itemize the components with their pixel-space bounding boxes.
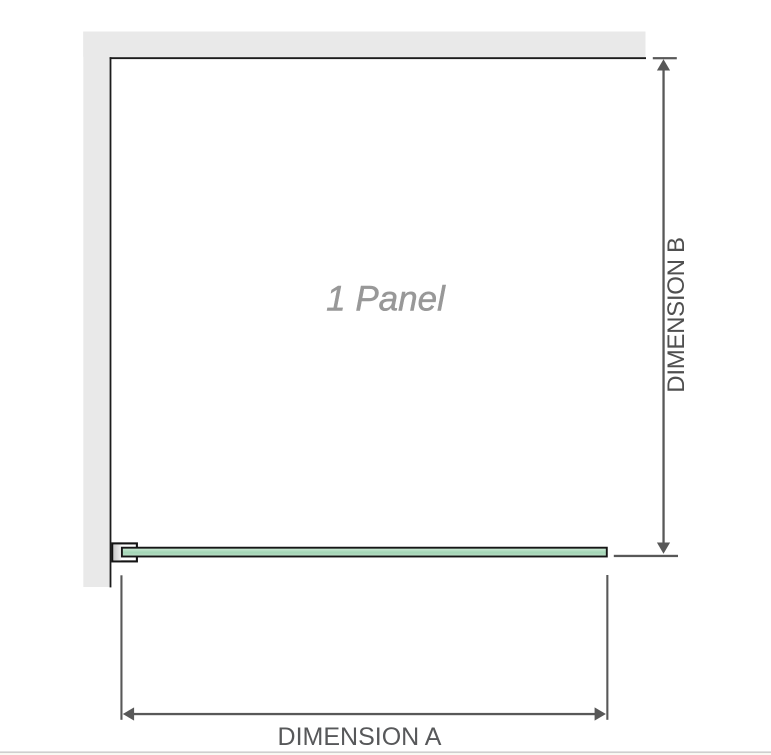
svg-text:1 Panel: 1 Panel (326, 280, 446, 319)
svg-text:DIMENSION A: DIMENSION A (278, 723, 442, 751)
svg-text:DIMENSION B: DIMENSION B (663, 237, 690, 392)
